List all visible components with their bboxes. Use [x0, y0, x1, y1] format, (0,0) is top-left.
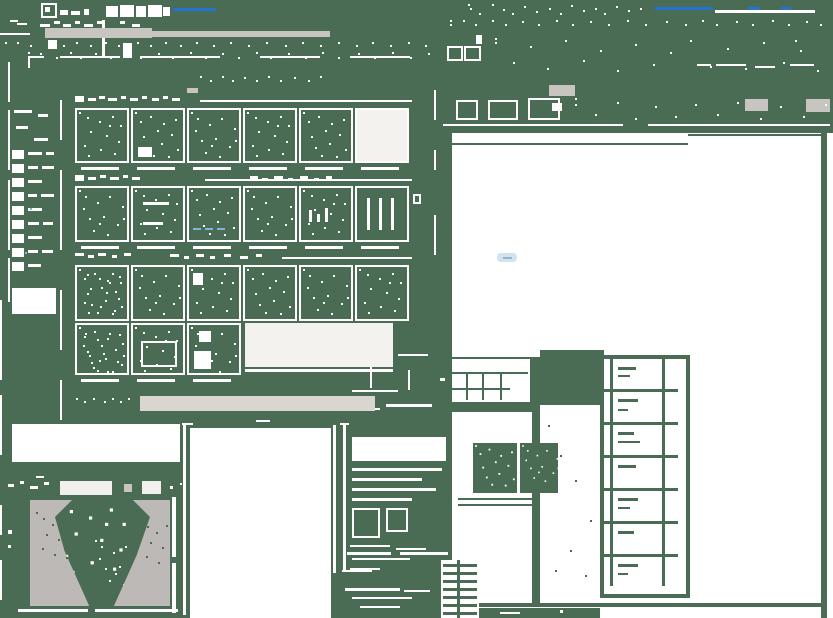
frame-fragment: [352, 558, 410, 560]
section-header-fragment: [75, 253, 84, 256]
toolbar-speckles-row2: [28, 52, 30, 54]
section-rule: [282, 257, 412, 259]
panel-corner-fragment: [28, 56, 30, 68]
preview-bottom-border: [18, 609, 88, 612]
section-header-fragment: [88, 98, 96, 101]
title-text-fragment: [136, 6, 146, 17]
window-edge-fragment: [102, 20, 105, 58]
preview-shape-holes: [140, 520, 142, 522]
small-box-ghost: [352, 508, 380, 538]
list-item-fragment[interactable]: [12, 248, 24, 257]
section-rule: [200, 100, 412, 102]
list-item-fragment: [42, 250, 53, 253]
table-cell-glyph: [618, 531, 634, 534]
dialog-bottom-edge: [340, 423, 349, 425]
section-header-fragment: [123, 175, 128, 178]
toolbar-button-ghost[interactable]: [464, 46, 481, 61]
bottom-dash: [560, 610, 563, 613]
section-header-fragment: [132, 177, 140, 180]
swatch-glyph: [194, 351, 211, 369]
preview-dropdown-small[interactable]: [142, 481, 161, 494]
dialog-top-edge: [260, 56, 320, 58]
menu-text-fragment: [54, 21, 60, 24]
titlebar-line: [715, 10, 815, 13]
toolbar-speckles-right2: [575, 98, 577, 100]
dialog-right-edge: [434, 150, 436, 170]
pattern-swatch-solid[interactable]: [355, 108, 409, 163]
list-item-fragment: [41, 194, 54, 197]
swatch-glyph: [199, 331, 211, 342]
list-line: [352, 498, 412, 501]
menu-text-fragment: [120, 21, 125, 24]
pattern-swatch[interactable]: [187, 323, 241, 375]
preview-bottom-border: [95, 609, 178, 612]
toolbar-button-fragment[interactable]: [552, 103, 562, 111]
dialog-left-edge: [60, 380, 62, 420]
section-header-fragment: [100, 175, 106, 178]
preview-toolbar-dash: [44, 482, 49, 485]
dialog-right-edge: [434, 90, 436, 120]
menu-text-fragment: [40, 24, 50, 27]
section-header-fragment: [75, 175, 84, 181]
preview-dot: [170, 486, 173, 489]
list-item-fragment[interactable]: [12, 220, 24, 229]
toolbar-separator-line: [443, 124, 623, 126]
drawing-speckles: [548, 425, 550, 427]
preview-left-border: [0, 505, 2, 535]
cyan-dash: [217, 228, 225, 230]
drawing-band: [452, 404, 532, 412]
swatch-glyph: [143, 202, 169, 205]
section-header-fragment: [163, 96, 168, 99]
table-row-line: [604, 554, 678, 557]
list-item-fragment: [28, 166, 38, 169]
stair-rung: [443, 604, 477, 607]
pattern-swatch[interactable]: [75, 265, 129, 321]
dialog-title-fragment: [187, 88, 198, 93]
dialog-bottom-dots: [76, 398, 78, 400]
section-header-fragment: [75, 96, 84, 102]
canvas-bottom-fragment: [400, 552, 448, 555]
swatch-glyph: [143, 222, 163, 225]
toolbar-band: [152, 31, 330, 37]
toolbar-gray-button[interactable]: [745, 99, 768, 111]
list-item-fragment[interactable]: [12, 164, 24, 173]
section-header-fragment: [88, 177, 96, 180]
toolbar-line-fragment: [716, 64, 746, 66]
swatch-row-1: [75, 108, 409, 163]
list-item-fragment: [46, 152, 54, 155]
swatch-row-3: [75, 265, 409, 321]
section-header-fragment: [170, 254, 179, 257]
cyan-speck: [25, 252, 27, 254]
section-header-fragment: [210, 256, 215, 259]
canvas-bottom-fragment: [347, 552, 391, 555]
drawing-line: [500, 374, 502, 400]
drawing-line: [452, 372, 528, 374]
title-text-fragment: [60, 10, 68, 15]
list-item-fragment: [28, 222, 39, 225]
frame-fragment: [350, 545, 390, 547]
window-frame-line: [343, 425, 346, 571]
swatch-row-2: [75, 186, 409, 242]
section-header-fragment: [142, 96, 147, 99]
stair-detail: [441, 560, 479, 618]
bottom-dash: [342, 570, 372, 572]
section-header-fragment: [256, 254, 262, 257]
list-item-fragment: [28, 250, 38, 253]
frame-fragment: [396, 548, 426, 550]
palette-bottom-swatch[interactable]: [12, 288, 56, 314]
canvas-cyan-marker-text: [503, 257, 512, 259]
preview-window: [0, 420, 192, 618]
dialog-scroll-fragment[interactable]: [413, 194, 421, 204]
dialog-left-edge: [60, 100, 62, 140]
cyan-speck: [30, 208, 32, 210]
dialog-left-edge: [60, 290, 62, 350]
menu-text-fragment: [63, 24, 71, 27]
preview-dot: [8, 545, 11, 548]
frame-fragment: [452, 415, 455, 475]
section-header-fragment: [184, 256, 189, 259]
cyan-dash: [205, 228, 213, 230]
table-row-line: [604, 422, 678, 425]
panel-border: [8, 62, 10, 102]
small-box-ghost: [386, 508, 408, 532]
pattern-swatch[interactable]: [243, 265, 297, 321]
dialog-top-edge: [350, 56, 410, 58]
swatch-glyph: [138, 147, 152, 157]
list-header-fragment: [34, 138, 48, 141]
list-header-fragment: [14, 110, 32, 113]
drawing-hatch-block: [520, 443, 558, 493]
toolbar-button-ghost[interactable]: [456, 100, 478, 120]
table-cell-glyph: [618, 399, 638, 402]
drawing-canvas-lower-left[interactable]: [190, 428, 331, 618]
dialog-left-edge: [60, 170, 62, 250]
toolbar-gray-button[interactable]: [549, 85, 575, 96]
drawing-hatch-block: [473, 443, 517, 493]
canvas-ruler-line: [688, 134, 822, 136]
swatch-bar: [391, 198, 394, 230]
titlebar-highlight: [655, 7, 713, 10]
canvas-ruler-line: [452, 143, 688, 145]
section-header-fragment: [108, 98, 117, 101]
list-item-fragment[interactable]: [12, 262, 24, 271]
drawing-line: [466, 374, 468, 400]
pattern-swatch[interactable]: [131, 186, 185, 242]
preview-left-border: [0, 560, 2, 600]
pattern-swatch[interactable]: [187, 186, 241, 242]
menu-text-fragment: [17, 23, 27, 25]
dialog-title-dots: [200, 76, 202, 78]
preview-toolbar-dash: [30, 486, 38, 489]
section-header-fragment: [196, 254, 204, 257]
list-item-fragment[interactable]: [12, 178, 24, 187]
title-bar: [0, 0, 833, 18]
list-item-fragment: [42, 166, 54, 169]
table-cell-glyph: [618, 564, 638, 567]
preview-dropdown[interactable]: [60, 481, 112, 495]
canvas-right-edge[interactable]: [827, 133, 833, 618]
stair-rung: [443, 564, 477, 567]
table-cell-glyph: [618, 432, 634, 435]
pattern-swatch[interactable]: [75, 186, 129, 242]
dialog-preview-underline: [245, 369, 393, 372]
table-row-line: [604, 488, 678, 491]
list-line: [352, 468, 442, 471]
title-text-fragment: [120, 5, 134, 17]
stair-rung: [443, 612, 477, 615]
drawing-line: [458, 498, 532, 500]
table-cell-glyph: [618, 465, 636, 468]
table-cell-glyph: [618, 367, 636, 370]
title-text-fragment: [148, 5, 162, 17]
section-rule: [205, 179, 412, 181]
section-header-fragment: [121, 96, 126, 99]
pattern-swatch[interactable]: [243, 186, 297, 242]
list-item-fragment[interactable]: [12, 234, 24, 243]
pattern-swatch[interactable]: [131, 265, 185, 321]
dialog-right-edge: [434, 215, 436, 255]
list-item-fragment[interactable]: [12, 150, 24, 159]
palette-list[interactable]: [10, 148, 60, 288]
section-header-fragment: [172, 98, 180, 101]
drawing-detail-box: [450, 357, 532, 404]
schedule-table: [600, 355, 690, 598]
titlebar-highlight: [781, 7, 791, 10]
pattern-swatch[interactable]: [299, 108, 353, 163]
toolbar-button-ghost[interactable]: [488, 100, 518, 120]
toolbar-band: [45, 28, 152, 38]
canvas-scroll-divider: [821, 133, 827, 618]
stair-rung: [443, 580, 477, 583]
list-item-fragment: [28, 194, 37, 197]
list-header-fragment: [38, 114, 48, 117]
cyan-dash: [193, 228, 201, 230]
section-header-fragment: [98, 253, 106, 256]
section-header-fragment: [152, 98, 159, 101]
left-window-border: [0, 300, 2, 380]
section-header-fragment: [88, 255, 94, 258]
app-icon-glyph: [45, 7, 50, 12]
pattern-swatch[interactable]: [75, 323, 129, 375]
swatch-bar: [367, 198, 370, 230]
bottom-dash: [404, 590, 430, 592]
bottom-dash: [500, 612, 520, 614]
preview-top-panel: [12, 424, 180, 462]
toolbar-button-ghost[interactable]: [447, 46, 463, 61]
canvas-border-line: [452, 603, 822, 607]
title-text-fragment: [71, 11, 80, 15]
table-cell-glyph: [618, 573, 628, 575]
frame-fragment: [452, 490, 455, 560]
list-item-fragment[interactable]: [12, 192, 24, 201]
swatch-glyph: [309, 210, 312, 222]
list-item-fragment: [28, 180, 42, 183]
toolbar-line-fragment: [755, 66, 775, 68]
dialog-frag: [440, 378, 445, 381]
preview-dot: [8, 530, 12, 534]
titlebar-highlight: [748, 7, 760, 10]
pattern-swatch[interactable]: [131, 323, 185, 375]
toolbar-button-fragment[interactable]: [476, 35, 482, 44]
table-cell-glyph: [618, 498, 638, 501]
dialog-bottom-dash: [386, 404, 432, 407]
menu-text-fragment: [84, 24, 93, 27]
list-line: [352, 488, 436, 491]
swatch-glyph: [193, 273, 203, 285]
stair-rung: [443, 596, 477, 599]
titlebar-highlight: [173, 8, 216, 11]
toolbar-line-fragment: [790, 64, 814, 66]
menu-speckles-right: [450, 20, 452, 22]
pattern-swatch[interactable]: [243, 108, 297, 163]
pattern-swatch[interactable]: [299, 265, 353, 321]
dialog-preview-box: [245, 323, 393, 367]
list-item-fragment: [43, 222, 53, 225]
listbox-white[interactable]: [352, 437, 446, 461]
section-header-fragment: [99, 96, 105, 99]
preview-gray-button[interactable]: [124, 484, 132, 492]
toolbar-line-fragment: [697, 64, 711, 66]
canvas-bottom-strip: [600, 608, 822, 618]
pattern-swatch[interactable]: [75, 108, 129, 163]
table-cell-glyph: [618, 441, 640, 443]
swatch-glyph: [317, 214, 320, 222]
panel-corner-fragment: [28, 56, 44, 58]
preview-right-border: [172, 563, 176, 613]
table-column-line: [662, 359, 665, 586]
bottom-dash: [345, 588, 400, 591]
degraded-app-screenshot: [0, 0, 833, 618]
section-header-fragment: [130, 98, 138, 101]
dialog-bottom-edge: [256, 420, 270, 422]
table-cell-glyph: [618, 507, 630, 509]
preview-shape-holes: [36, 512, 38, 514]
section-header-fragment: [240, 256, 248, 259]
stair-rung: [443, 572, 477, 575]
list-line: [352, 478, 422, 481]
table-column-line: [610, 359, 613, 586]
drawing-dark-region: [540, 350, 604, 405]
dialog-top-edge: [60, 56, 120, 58]
dialog-top-edge: [140, 56, 220, 58]
preview-toolbar-dash: [36, 476, 44, 478]
toolbar-button-fragment[interactable]: [48, 40, 57, 49]
table-row-line: [604, 521, 678, 524]
pattern-swatch[interactable]: [355, 265, 409, 321]
pattern-swatch[interactable]: [187, 108, 241, 163]
table-row-line: [604, 455, 678, 458]
section-header-fragment: [110, 177, 119, 180]
section-header-fragment: [112, 255, 117, 258]
pattern-swatch[interactable]: [299, 186, 353, 242]
section-header-fragment: [224, 254, 231, 257]
pattern-dropdown-bar[interactable]: [140, 396, 375, 411]
list-item-fragment: [28, 152, 42, 155]
menu-text-fragment: [10, 20, 18, 22]
title-text-fragment: [163, 7, 170, 16]
stair-rung: [443, 588, 477, 591]
toolbar-separator-line: [648, 124, 830, 126]
preview-toolbar-dash: [8, 484, 14, 487]
swatch-inner-box: [141, 341, 177, 367]
pattern-swatch[interactable]: [131, 108, 185, 163]
table-row-line: [604, 389, 678, 392]
preview-toolbar-dash: [20, 481, 24, 484]
window-frame-line: [333, 425, 336, 573]
toolbar-speckles-right: [495, 38, 497, 40]
menu-text-fragment: [132, 24, 140, 27]
menu-text-fragment: [75, 21, 80, 24]
toolbar-speckles-row1: [5, 42, 7, 44]
preview-dot: [180, 483, 182, 485]
bottom-dash: [360, 606, 400, 608]
title-text-fragment: [106, 6, 118, 17]
swatch-bar: [379, 198, 382, 230]
section-header-fragment: [124, 253, 131, 256]
list-item-fragment[interactable]: [12, 206, 24, 215]
artifact-speckles: [468, 4, 470, 6]
table-cell-glyph: [618, 409, 628, 411]
table-cell-glyph: [618, 375, 630, 377]
title-text-fragment: [84, 9, 89, 15]
swatch-row-4: [75, 323, 241, 375]
list-header-fragment: [16, 126, 28, 129]
window-edge-fragment: [0, 33, 30, 35]
pattern-swatch[interactable]: [355, 186, 409, 242]
toolbar-gray-button[interactable]: [806, 99, 830, 112]
drawing-line: [458, 504, 532, 506]
list-item-fragment: [28, 236, 42, 239]
list-item-fragment: [28, 264, 41, 267]
preview-right-border: [172, 497, 176, 557]
drawing-line: [482, 374, 484, 400]
swatch-glyph: [325, 208, 328, 222]
bottom-dash: [352, 597, 412, 599]
pattern-swatch[interactable]: [187, 265, 241, 321]
